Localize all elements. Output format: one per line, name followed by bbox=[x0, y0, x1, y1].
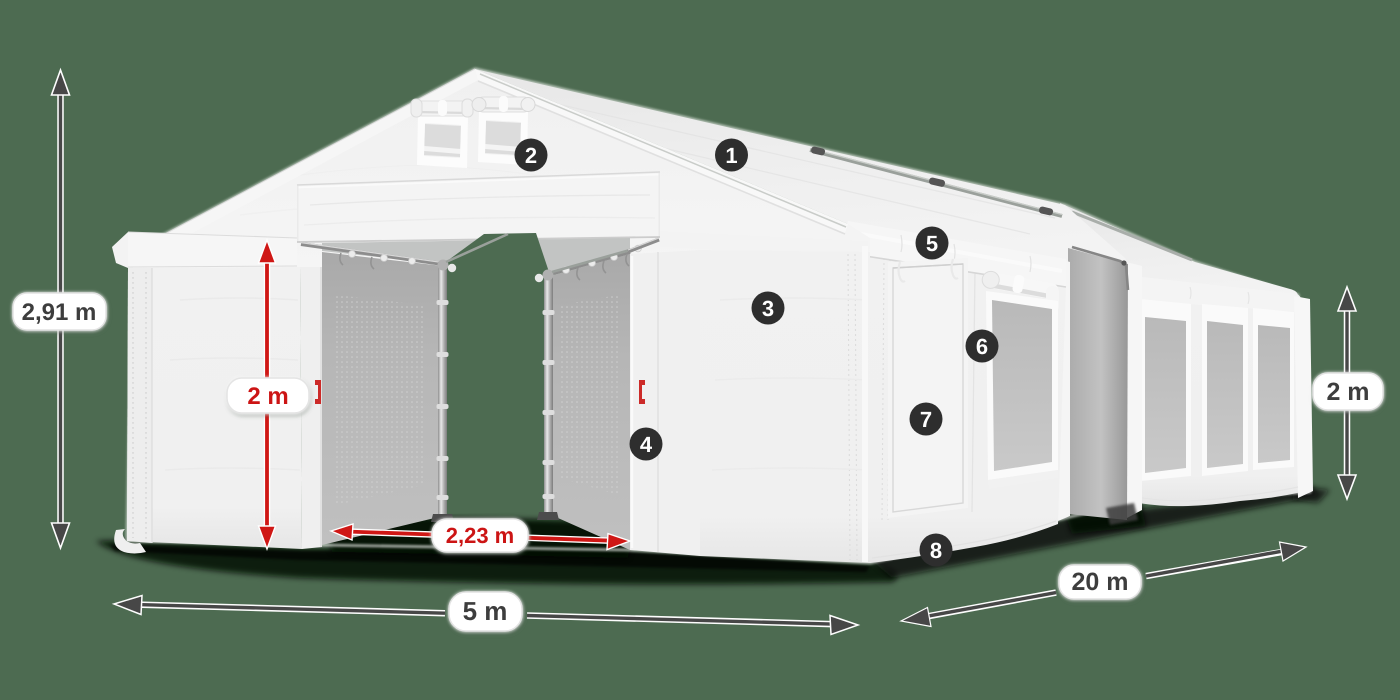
svg-text:8: 8 bbox=[930, 538, 942, 563]
svg-text:2,23 m: 2,23 m bbox=[446, 523, 515, 548]
svg-text:5: 5 bbox=[926, 231, 938, 256]
svg-text:2 m: 2 m bbox=[1326, 378, 1369, 406]
svg-text:2: 2 bbox=[525, 143, 537, 168]
svg-text:3: 3 bbox=[762, 296, 774, 321]
svg-text:4: 4 bbox=[640, 432, 653, 457]
svg-text:5 m: 5 m bbox=[463, 596, 508, 626]
svg-text:20 m: 20 m bbox=[1072, 568, 1129, 596]
svg-text:2,91 m: 2,91 m bbox=[22, 299, 97, 326]
svg-text:7: 7 bbox=[920, 407, 932, 432]
svg-text:2 m: 2 m bbox=[247, 383, 288, 410]
svg-text:6: 6 bbox=[976, 334, 988, 359]
svg-text:1: 1 bbox=[725, 143, 737, 168]
